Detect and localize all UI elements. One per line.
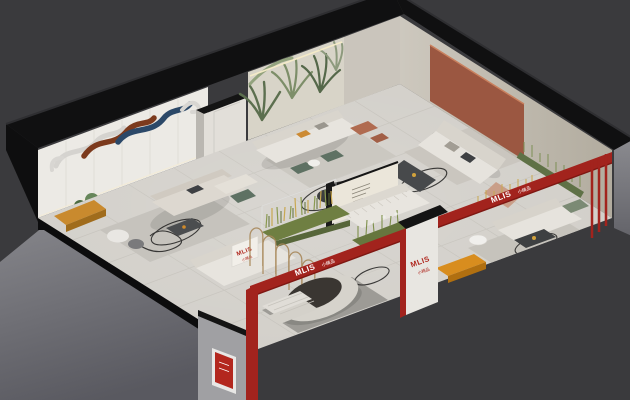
white-orchid xyxy=(382,215,385,218)
ottoman-deco xyxy=(182,225,186,229)
white-orchid xyxy=(394,212,397,215)
pillar-red-trim xyxy=(400,228,406,318)
ottoman-deco xyxy=(412,173,416,177)
corner-pillar-red-band xyxy=(246,284,258,400)
isometric-scene: MLIS 小精品 xyxy=(0,0,630,400)
round-coffee-table xyxy=(107,230,129,243)
round-side-table xyxy=(308,160,320,167)
round-glass-table xyxy=(469,235,487,245)
round-tray-table xyxy=(128,239,144,249)
white-orchid xyxy=(370,220,373,223)
showroom-render: MLIS 小精品 xyxy=(0,0,630,400)
gold-deco xyxy=(532,236,536,240)
right-exterior-wall xyxy=(614,140,630,236)
